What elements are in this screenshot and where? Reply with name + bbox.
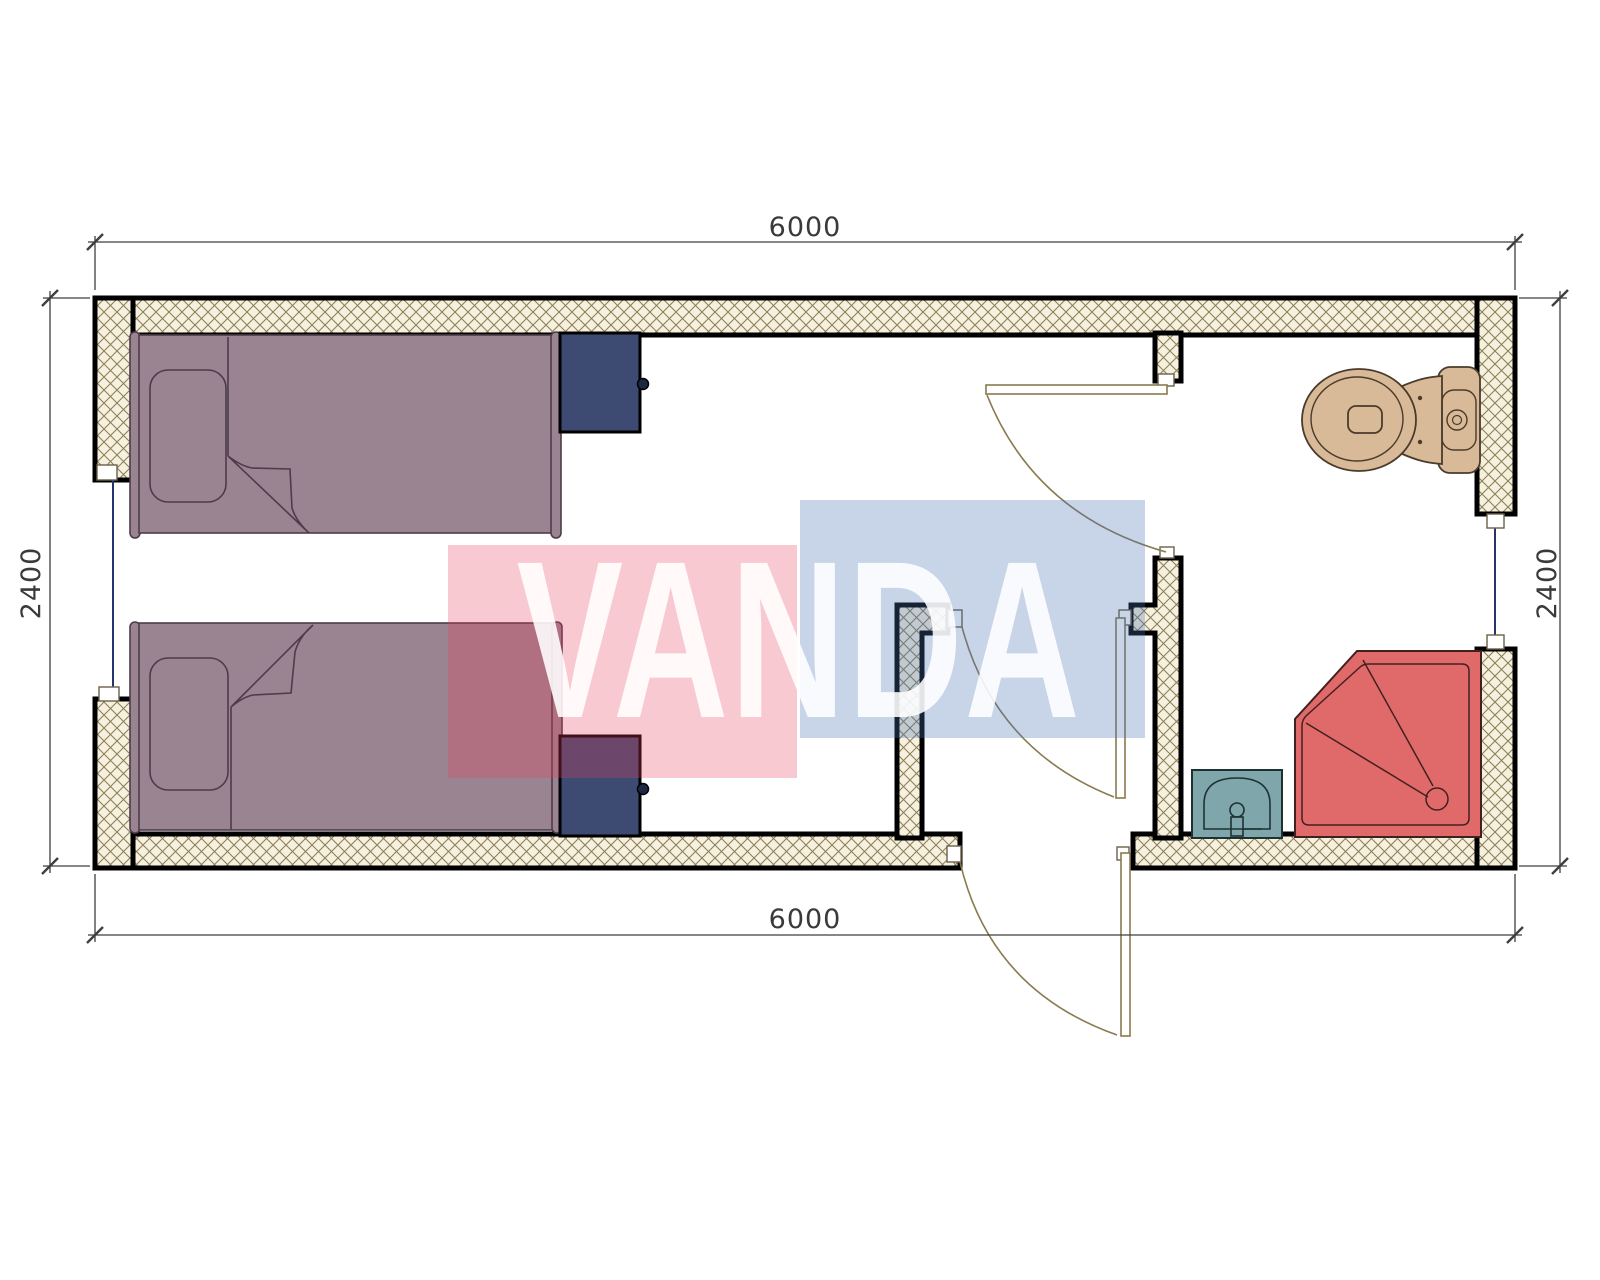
wall-right-lower xyxy=(1477,649,1515,868)
door-jamb xyxy=(947,846,961,862)
wall-left-lower xyxy=(95,699,133,868)
wall-left-upper xyxy=(95,298,133,480)
bed-pillow xyxy=(150,370,226,502)
dimension-label-bottom: 6000 xyxy=(769,904,842,935)
door-jamb xyxy=(1160,547,1174,558)
floor-plan-drawing: 6000 6000 2400 2400 VANDA xyxy=(0,0,1600,1280)
bed-top xyxy=(130,332,561,538)
toilet xyxy=(1302,367,1480,473)
nightstand-knob xyxy=(638,784,649,795)
window-jamb xyxy=(97,465,117,480)
wall-bottom-right xyxy=(1133,834,1515,868)
entry-door-leaf xyxy=(1121,853,1130,1036)
watermark: VANDA xyxy=(448,500,1145,778)
bed-pillow xyxy=(150,658,228,790)
toilet-seat-bolt xyxy=(1418,440,1422,444)
dimension-label-left: 2400 xyxy=(16,547,47,620)
wall-top xyxy=(95,298,1515,335)
wall-right-upper xyxy=(1477,298,1515,514)
sink xyxy=(1192,770,1282,838)
toilet-tank xyxy=(1438,367,1480,473)
dimension-label-top: 6000 xyxy=(769,212,842,243)
window-jamb xyxy=(99,687,119,701)
nightstand-top xyxy=(560,333,640,432)
nightstand-knob xyxy=(638,379,649,390)
shower-tray xyxy=(1295,651,1481,837)
sink-counter xyxy=(1192,770,1282,838)
window-jamb xyxy=(1487,514,1504,528)
window-jamb xyxy=(1487,635,1504,649)
dimension-label-right: 2400 xyxy=(1532,547,1563,620)
floor-plan-page: 6000 6000 2400 2400 VANDA xyxy=(0,0,1600,1280)
bathroom-door-leaf xyxy=(986,385,1167,394)
wall-bottom-left xyxy=(95,834,960,868)
toilet-seat-bolt xyxy=(1418,396,1422,400)
shower xyxy=(1295,651,1481,837)
watermark-text: VANDA xyxy=(517,516,1082,766)
entry-door-swing-arc xyxy=(960,862,1117,1035)
toilet-flush-button xyxy=(1348,406,1382,433)
